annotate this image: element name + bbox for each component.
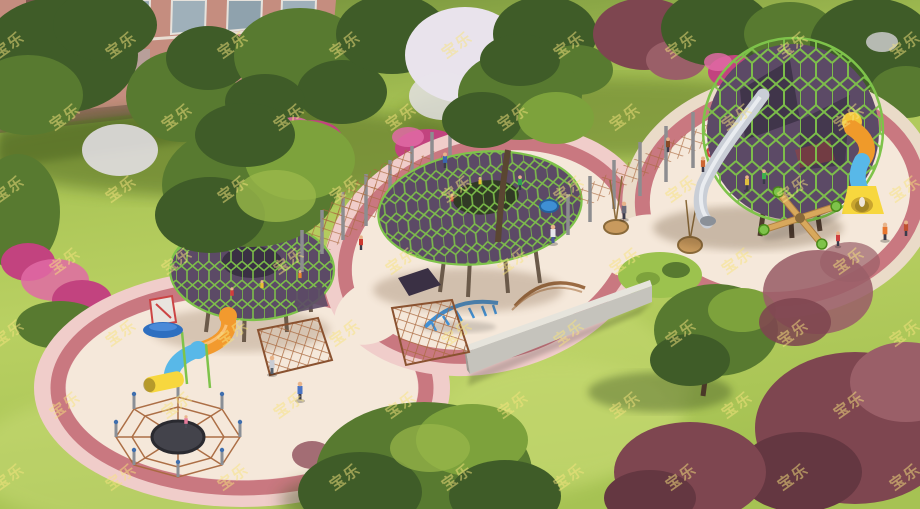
scene-illustration [0,0,920,509]
spinner-seat [540,200,558,212]
playground-aerial-render: 宝乐宝乐宝乐宝乐宝乐宝乐宝乐宝乐宝乐宝乐宝乐宝乐宝乐宝乐宝乐宝乐宝乐宝乐宝乐宝乐… [0,0,920,509]
